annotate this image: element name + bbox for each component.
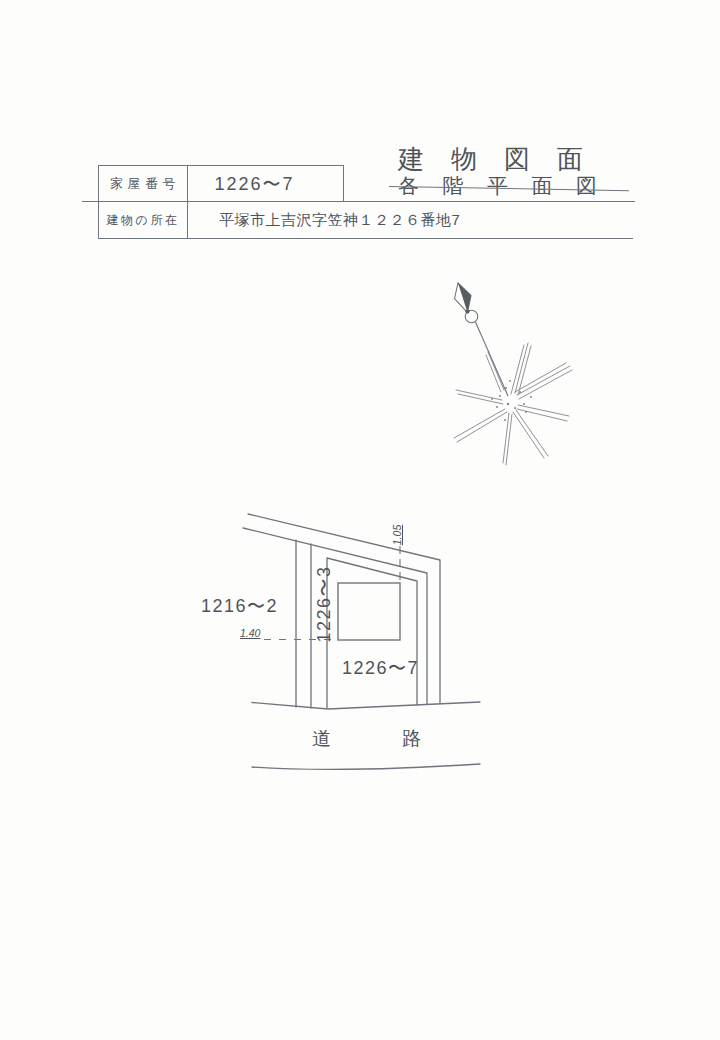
dimension-top-value: 1.05	[391, 524, 403, 546]
lot-label-left: 1216〜2	[201, 594, 278, 618]
building-outline	[338, 583, 400, 640]
lot-label-strip: 1226〜3	[312, 564, 330, 644]
dimension-left-value: 1.40	[240, 627, 260, 639]
starburst-sketch	[454, 343, 572, 465]
document-page: 家屋番号 1226〜7 建物の所在 平塚市上吉沢字笠神１２２６番地7 建物図面 …	[0, 0, 720, 1040]
header-row-location: 建物の所在 平塚市上吉沢字笠神１２２６番地7	[98, 202, 633, 239]
site-plan-drawing	[0, 0, 720, 1040]
road-label: 道路	[312, 726, 492, 752]
location-value: 平塚市上吉沢字笠神１２２６番地7	[188, 202, 633, 238]
lot-label-main: 1226〜7	[342, 656, 419, 680]
location-label: 建物の所在	[99, 202, 188, 238]
header-row-house-number: 家屋番号 1226〜7	[98, 165, 344, 202]
house-number-label: 家屋番号	[99, 166, 188, 201]
doc-title: 建物図面	[398, 146, 610, 173]
north-arrow-icon	[454, 283, 572, 465]
house-number-value: 1226〜7	[188, 166, 343, 201]
